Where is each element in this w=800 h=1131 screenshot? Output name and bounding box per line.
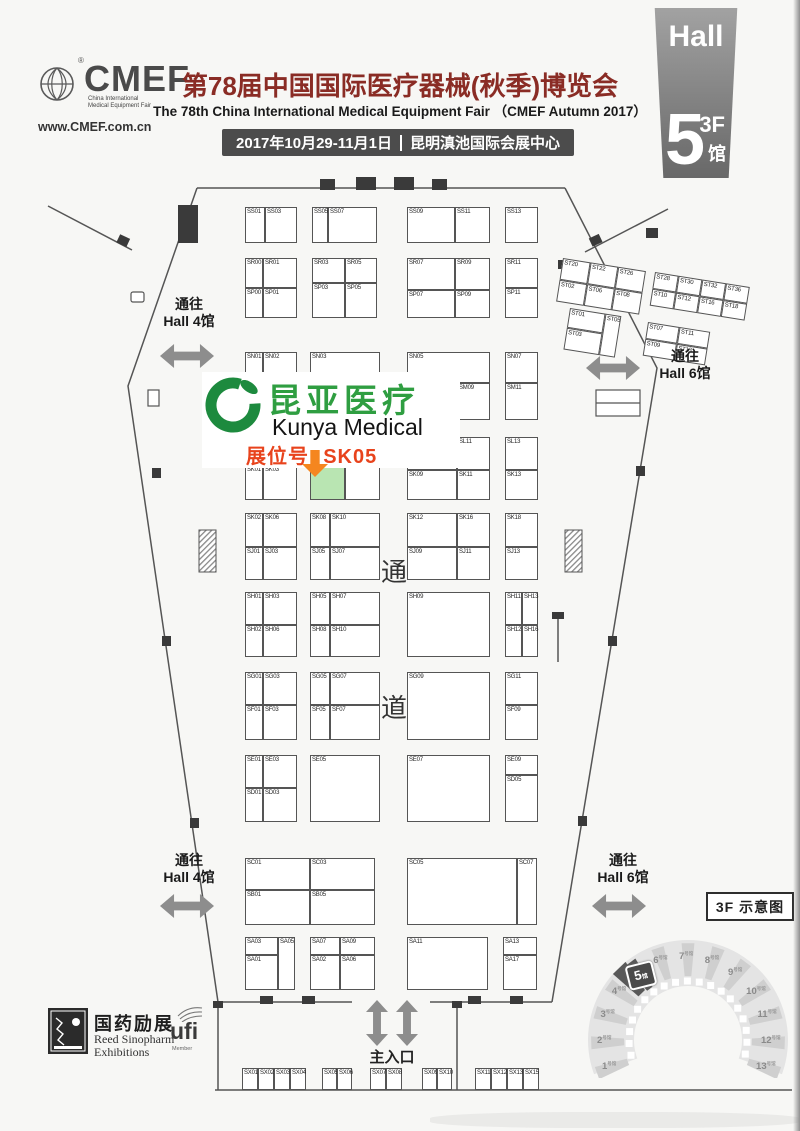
booth-SE07: SE07 (407, 755, 490, 822)
booth-SF03: SF03 (263, 705, 297, 740)
booth-SX02: SX02 (258, 1068, 274, 1090)
booth-SL13: SL13 (505, 437, 538, 470)
booth-SX13: SX13 (507, 1068, 523, 1090)
booth-SJ13: SJ13 (505, 547, 538, 580)
booth-SX04: SX04 (290, 1068, 306, 1090)
booth-SH16: SH16 (522, 625, 538, 657)
to-hall6-label-bottom: 通往 Hall 6馆 (578, 852, 668, 886)
booth-SJ03: SJ03 (263, 547, 297, 580)
booth-SA13: SA13 (503, 937, 537, 955)
booth-SS13: SS13 (505, 207, 538, 243)
booth-SH03: SH03 (263, 592, 297, 625)
hall-6-label: 6号馆 (653, 956, 663, 965)
booth-SK12: SK12 (407, 513, 457, 547)
booth-ST18: ST18 (721, 300, 747, 321)
booth-SE05: SE05 (310, 755, 380, 822)
to-hall6-line1: 通往 (578, 852, 668, 869)
kunya-name-en: Kunya Medical (272, 414, 423, 441)
aisle-label-1: 通 (381, 552, 407, 589)
booth-SR05: SR05 (345, 258, 377, 283)
booth-SF01: SF01 (245, 705, 263, 740)
booth-SR07: SR07 (407, 258, 455, 290)
booth-SA03: SA03 (245, 937, 278, 955)
booth-SK03: SK03 (263, 465, 297, 500)
hall-3-label: 3号馆 (600, 1010, 610, 1019)
booth-SA11: SA11 (407, 937, 488, 990)
booth-SR01: SR01 (263, 258, 297, 288)
booth-SS03: SS03 (265, 207, 297, 243)
booth-SB01: SB01 (245, 890, 310, 925)
booth-SD03: SD03 (263, 788, 297, 822)
to-hall6-label-top: 通往 Hall 6馆 (640, 348, 730, 382)
booth-SS07: SS07 (328, 207, 377, 243)
to-hall6-line2: Hall 6馆 (640, 365, 730, 382)
booth-SR09: SR09 (455, 258, 490, 290)
booth-SS11: SS11 (455, 207, 490, 243)
booth-SP11: SP11 (505, 288, 538, 318)
booth-SB05: SB05 (310, 890, 375, 925)
hall-9-label: 9号馆 (728, 968, 738, 977)
booth-SK08: SK08 (310, 513, 330, 547)
booth-SJ01: SJ01 (245, 547, 263, 580)
booth-SF09: SF09 (505, 705, 538, 740)
booth-SF05: SF05 (310, 705, 330, 740)
booth-SK01: SK01 (245, 465, 263, 500)
booth-SA06: SA06 (340, 955, 375, 990)
overview-title-box: 3F 示意图 (706, 892, 794, 921)
booth-ST12: ST12 (673, 293, 699, 314)
to-hall4-line2: Hall 4馆 (144, 313, 234, 330)
to-hall6-line1: 通往 (640, 348, 730, 365)
booth-SN07: SN07 (505, 352, 538, 383)
booth-SA07: SA07 (310, 937, 340, 955)
booth-SK10: SK10 (330, 513, 380, 547)
booth-SH07: SH07 (330, 592, 380, 625)
booth-SK09: SK09 (407, 470, 457, 500)
kunya-logo-icon (204, 374, 266, 436)
booth-SP03: SP03 (312, 283, 345, 318)
hall-10-label: 10号馆 (746, 987, 762, 996)
booth-SH12: SH12 (505, 625, 522, 657)
booth-SX03: SX03 (274, 1068, 290, 1090)
booth-SX08: SX08 (386, 1068, 402, 1090)
booth-SJ07: SJ07 (330, 547, 380, 580)
hall-12-label: 12号馆 (761, 1036, 777, 1045)
booth-SG03: SG03 (263, 672, 297, 705)
booth-SP07: SP07 (407, 290, 455, 318)
booth-SA09: SA09 (340, 937, 375, 955)
booth-ST08: ST08 (611, 288, 642, 314)
main-entrance-label: 主入口 (352, 1046, 432, 1067)
booth-SH13: SH13 (522, 592, 538, 625)
booth-ST02: ST02 (556, 280, 587, 306)
booth-SS09: SS09 (407, 207, 455, 243)
booth-SE01: SE01 (245, 755, 263, 788)
booth-SK11: SK11 (457, 470, 490, 500)
booth-SE03: SE03 (263, 755, 297, 788)
floorplan-page: ® CMEF China International Medical Equip… (0, 0, 800, 1131)
booth-SF07: SF07 (330, 705, 380, 740)
aisle-label-2: 道 (381, 688, 407, 725)
booth-SM09: SM09 (457, 383, 490, 420)
booth-SA02: SA02 (310, 955, 340, 990)
booth-SH05: SH05 (310, 592, 330, 625)
booth-SP00: SP00 (245, 288, 263, 318)
booth-SS05: SS05 (312, 207, 328, 243)
booth-SJ11: SJ11 (457, 547, 490, 580)
booth-SX05: SX05 (322, 1068, 337, 1090)
booth-SK13: SK13 (505, 470, 538, 500)
hall-7-label: 7号馆 (679, 952, 689, 961)
booth-SK02: SK02 (245, 513, 263, 547)
booth-ST16: ST16 (697, 296, 723, 317)
booth-SA01: SA01 (245, 955, 278, 990)
booth-SC01: SC01 (245, 858, 310, 890)
to-hall4-label-top: 通往 Hall 4馆 (144, 296, 234, 330)
booth-SK16: SK16 (457, 513, 490, 547)
to-hall6-line2: Hall 6馆 (578, 869, 668, 886)
booth-SS01: SS01 (245, 207, 265, 243)
booth-SR00: SR00 (245, 258, 263, 288)
to-hall4-label-bottom: 通往 Hall 4馆 (144, 852, 234, 886)
booth-SR11: SR11 (505, 258, 538, 288)
booth-SG07: SG07 (330, 672, 380, 705)
booth-SE09: SE09 (505, 755, 538, 775)
to-hall4-line1: 通往 (144, 852, 234, 869)
booth-SM11: SM11 (505, 383, 538, 420)
booth-SH08: SH08 (310, 625, 330, 657)
booth-SH10: SH10 (330, 625, 380, 657)
booth-ST06: ST06 (584, 284, 615, 310)
booth-SD05: SD05 (505, 775, 538, 822)
booth-SK18: SK18 (505, 513, 538, 547)
booth-SH11: SH11 (505, 592, 522, 625)
booth-ST10: ST10 (650, 289, 676, 310)
booth-SD01: SD01 (245, 788, 263, 822)
hall-2-label: 2号馆 (597, 1036, 607, 1045)
hall-1-label: 1号馆 (602, 1062, 612, 1071)
booth-SA05: SA05 (278, 937, 295, 990)
booth-SG09: SG09 (407, 672, 490, 740)
booth-SH02: SH02 (245, 625, 263, 657)
booth-SJ09: SJ09 (407, 547, 457, 580)
booth-SH01: SH01 (245, 592, 263, 625)
booth-SX09: SX09 (422, 1068, 437, 1090)
booth-SL11: SL11 (457, 437, 490, 470)
booth-SX01: SX01 (242, 1068, 258, 1090)
booth-SJ05: SJ05 (310, 547, 330, 580)
hall-11-label: 11号馆 (758, 1010, 773, 1019)
overview-fan-diagram: 1号馆2号馆3号馆4号馆6号馆7号馆8号馆9号馆10号馆11号馆12号馆13号馆… (578, 928, 798, 1078)
to-hall4-line2: Hall 4馆 (144, 869, 234, 886)
to-hall4-line1: 通往 (144, 296, 234, 313)
scan-edge (793, 0, 800, 1131)
hall-13-label: 13号馆 (756, 1062, 772, 1071)
booth-SG01: SG01 (245, 672, 263, 705)
booth-SH06: SH06 (263, 625, 297, 657)
booth-SC03: SC03 (310, 858, 375, 890)
booth-SX06: SX06 (337, 1068, 352, 1090)
booth-SG11: SG11 (505, 672, 538, 705)
booth-SP01: SP01 (263, 288, 297, 318)
hall5-suffix: 馆 (642, 974, 649, 981)
booth-SR03: SR03 (312, 258, 345, 283)
booth-SX11: SX11 (475, 1068, 491, 1090)
kunya-callout: 昆亚医疗 Kunya Medical 展位号: SK05 (202, 372, 460, 468)
booth-SP05: SP05 (345, 283, 377, 318)
hall-8-label: 8号馆 (705, 956, 715, 965)
booth-SC07: SC07 (517, 858, 537, 925)
booth-SG05: SG05 (310, 672, 330, 705)
booth-SP09: SP09 (455, 290, 490, 318)
booth-SK06: SK06 (263, 513, 297, 547)
hall-4-label: 4号馆 (612, 987, 622, 996)
booth-SX12: SX12 (491, 1068, 507, 1090)
booth-SA17: SA17 (503, 955, 537, 990)
booth-SC05: SC05 (407, 858, 517, 925)
booth-SX15: SX15 (523, 1068, 539, 1090)
booth-SX10: SX10 (437, 1068, 452, 1090)
booth-SH09: SH09 (407, 592, 490, 657)
booth-SX07: SX07 (370, 1068, 386, 1090)
